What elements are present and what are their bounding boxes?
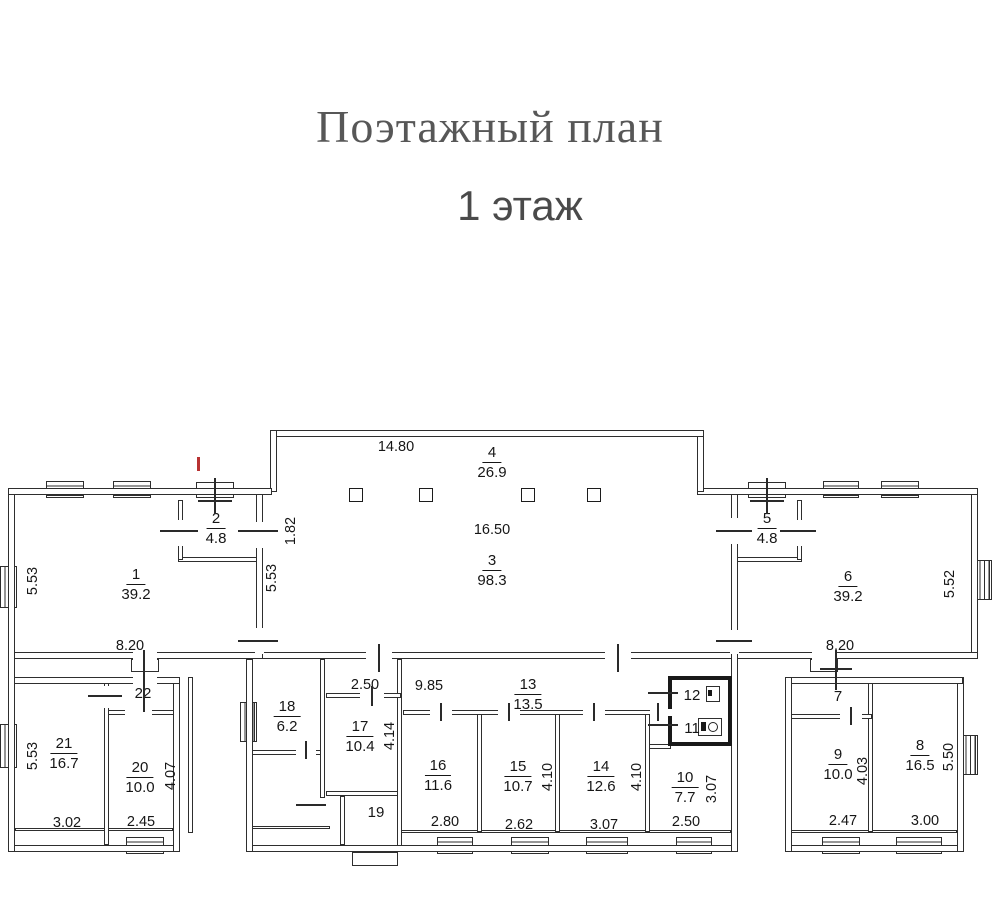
room-label-11: 11 <box>684 720 700 738</box>
door-symbol <box>648 724 678 726</box>
door-opening <box>796 520 803 546</box>
room-number: 13 <box>515 676 542 695</box>
room-area: 4.8 <box>206 529 227 548</box>
dim-label: 2.47 <box>829 813 857 829</box>
dim-label: 4.10 <box>540 763 556 791</box>
door-opening <box>730 630 739 654</box>
room-label-17: 1710.4 <box>345 718 374 756</box>
wall-segment <box>270 430 704 437</box>
room-label-6: 639.2 <box>833 568 862 606</box>
wall-segment <box>785 845 963 852</box>
dim-label: 5.53 <box>264 564 280 592</box>
room-number: 1 <box>127 566 145 585</box>
door-opening <box>352 852 398 866</box>
door-opening <box>255 522 264 548</box>
dim-label: 5.53 <box>25 742 41 770</box>
room-label-1: 139.2 <box>121 566 150 604</box>
room-number: 19 <box>368 804 385 822</box>
door-symbol <box>835 650 837 690</box>
door-opening <box>103 686 110 708</box>
room-label-18: 186.2 <box>274 698 301 736</box>
door-symbol <box>657 703 659 721</box>
door-symbol <box>160 530 198 532</box>
wall-segment <box>178 557 261 562</box>
room-number: 20 <box>127 759 154 778</box>
wall-segment <box>731 652 978 659</box>
room-area: 10.7 <box>503 777 532 796</box>
wall-segment <box>246 826 330 829</box>
room-label-3: 398.3 <box>477 552 506 590</box>
dim-label: 2.50 <box>351 677 379 693</box>
room-label-16: 1611.6 <box>424 757 452 795</box>
toilet-icon <box>708 722 718 732</box>
room-label-20: 2010.0 <box>125 759 154 797</box>
dim-label: 3.02 <box>53 815 81 831</box>
toilet-icon <box>701 722 706 731</box>
room-area: 39.2 <box>833 587 862 606</box>
room-number: 18 <box>274 698 301 717</box>
column-symbol <box>587 488 601 502</box>
column-symbol <box>419 488 433 502</box>
room-number: 21 <box>51 735 78 754</box>
wall-segment <box>246 845 738 852</box>
dim-label: 4.10 <box>629 763 645 791</box>
door-symbol <box>143 650 145 712</box>
dim-label: 4.07 <box>163 762 179 790</box>
room-area: 10.0 <box>823 765 852 784</box>
room-number: 8 <box>911 737 929 756</box>
room-label-5: 54.8 <box>757 510 778 548</box>
room-area: 11.6 <box>424 776 452 795</box>
wall-segment <box>697 430 704 492</box>
door-symbol <box>593 703 595 721</box>
door-symbol <box>238 530 278 532</box>
wall-segment <box>785 677 963 684</box>
wall-segment <box>785 677 792 852</box>
room-label-12: 12 <box>684 687 701 705</box>
door-symbol <box>508 703 510 721</box>
room-area: 39.2 <box>121 585 150 604</box>
sink-icon <box>708 690 712 696</box>
door-symbol <box>296 804 326 806</box>
door-opening <box>812 651 836 660</box>
door-opening <box>810 659 838 672</box>
door-symbol <box>88 695 122 697</box>
wall-segment <box>868 677 873 832</box>
room-label-9: 910.0 <box>823 746 852 784</box>
dim-label: 3.00 <box>911 813 939 829</box>
wall-segment <box>477 712 482 832</box>
wall-segment <box>645 712 650 832</box>
door-symbol <box>214 478 216 514</box>
wall-segment <box>188 677 193 833</box>
door-symbol <box>617 644 619 672</box>
dim-label: 3.07 <box>704 775 720 803</box>
wall-segment <box>957 677 964 852</box>
room-number: 12 <box>684 687 701 705</box>
room-number: 7 <box>834 688 842 706</box>
door-symbol <box>238 640 278 642</box>
door-opening <box>125 709 152 716</box>
room-label-14: 1412.6 <box>586 758 615 796</box>
room-label-8: 816.5 <box>905 737 934 775</box>
wall-segment <box>320 659 325 798</box>
floor-subtitle: 1 этаж <box>30 182 1000 230</box>
room-label-4: 426.9 <box>477 444 506 482</box>
room-label-21: 2116.7 <box>49 735 78 773</box>
room-number: 6 <box>839 568 857 587</box>
wall-segment <box>326 791 401 796</box>
wall-segment <box>8 845 180 852</box>
column-symbol <box>521 488 535 502</box>
page-title: Поэтажный план <box>0 100 980 153</box>
dim-label: 2.80 <box>431 814 459 830</box>
dim-label: 1.82 <box>283 517 299 545</box>
wall-segment <box>340 796 345 845</box>
dim-label: 2.62 <box>505 817 533 833</box>
room-label-19: 19 <box>368 804 385 822</box>
door-symbol <box>371 686 373 706</box>
wall-segment <box>736 557 802 562</box>
room-number: 17 <box>347 718 374 737</box>
floor-plan: Поэтажный план 1 этаж 139.2 24.8 398.3 4… <box>0 0 1000 904</box>
room-number: 3 <box>483 552 501 571</box>
room-area: 7.7 <box>672 788 699 807</box>
door-symbol <box>648 692 678 694</box>
room-area: 4.8 <box>757 529 778 548</box>
room-area: 26.9 <box>477 463 506 482</box>
dim-label: 16.50 <box>474 522 510 538</box>
room-number: 10 <box>672 769 699 788</box>
room-area: 10.0 <box>125 778 154 797</box>
door-symbol <box>378 644 380 672</box>
wall-segment <box>397 830 731 833</box>
door-symbol <box>716 530 752 532</box>
wall-segment <box>8 488 15 852</box>
dim-label: 4.14 <box>382 722 398 750</box>
room-area: 98.3 <box>477 571 506 590</box>
door-symbol <box>716 640 752 642</box>
wall-segment <box>246 659 253 852</box>
wall-segment <box>397 659 402 846</box>
room-number: 14 <box>588 758 615 777</box>
dim-label: 4.03 <box>855 757 871 785</box>
door-symbol <box>780 530 816 532</box>
wall-segment <box>791 830 957 833</box>
room-area: 6.2 <box>274 717 301 736</box>
wall-segment <box>697 488 978 495</box>
room-number: 2 <box>207 510 225 529</box>
dim-label: 14.80 <box>378 439 414 455</box>
red-survey-mark <box>197 457 200 471</box>
dim-label: 3.07 <box>590 817 618 833</box>
dim-label: 9.85 <box>415 678 443 694</box>
room-label-15: 1510.7 <box>503 758 532 796</box>
dim-label: 2.50 <box>672 814 700 830</box>
wall-segment <box>971 488 978 659</box>
room-area: 16.5 <box>905 756 934 775</box>
door-opening <box>131 659 159 672</box>
room-number: 16 <box>425 757 452 776</box>
room-label-7: 7 <box>834 688 842 706</box>
room-area: 12.6 <box>586 777 615 796</box>
wall-segment <box>8 488 272 495</box>
door-symbol <box>305 741 307 759</box>
dim-label: 5.52 <box>942 570 958 598</box>
wall-segment <box>270 430 277 492</box>
dim-label: 5.53 <box>25 567 41 595</box>
room-number: 15 <box>505 758 532 777</box>
room-number: 11 <box>684 720 700 738</box>
door-symbol <box>850 707 852 725</box>
door-symbol <box>440 703 442 721</box>
room-number: 9 <box>829 746 847 765</box>
room-label-2: 24.8 <box>206 510 227 548</box>
door-opening <box>133 676 157 685</box>
room-label-10: 107.7 <box>672 769 699 807</box>
dim-label: 5.50 <box>941 743 957 771</box>
door-opening <box>177 520 184 546</box>
column-symbol <box>349 488 363 502</box>
door-symbol <box>766 478 768 514</box>
door-opening <box>650 709 672 716</box>
dim-label: 2.45 <box>127 814 155 830</box>
wall-segment <box>256 652 738 659</box>
room-area: 16.7 <box>49 754 78 773</box>
room-number: 4 <box>483 444 501 463</box>
room-area: 10.4 <box>345 737 374 756</box>
door-opening <box>133 651 157 660</box>
